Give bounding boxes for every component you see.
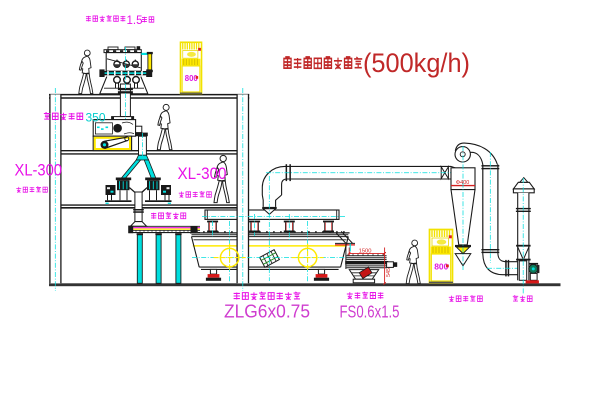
svg-text:1500: 1500 <box>359 249 372 255</box>
svg-text:Φ400: Φ400 <box>456 180 470 186</box>
svg-text:FS0.6x1.5: FS0.6x1.5 <box>340 302 400 322</box>
svg-text:ZLG6x0.75: ZLG6x0.75 <box>224 302 310 322</box>
svg-text:1.5: 1.5 <box>127 15 143 27</box>
svg-text:350: 350 <box>86 110 106 124</box>
svg-text:(500kg/h): (500kg/h) <box>363 48 470 78</box>
svg-text:XL-300: XL-300 <box>178 164 227 183</box>
svg-text:545: 545 <box>386 268 392 277</box>
svg-text:XL-300: XL-300 <box>15 161 63 180</box>
